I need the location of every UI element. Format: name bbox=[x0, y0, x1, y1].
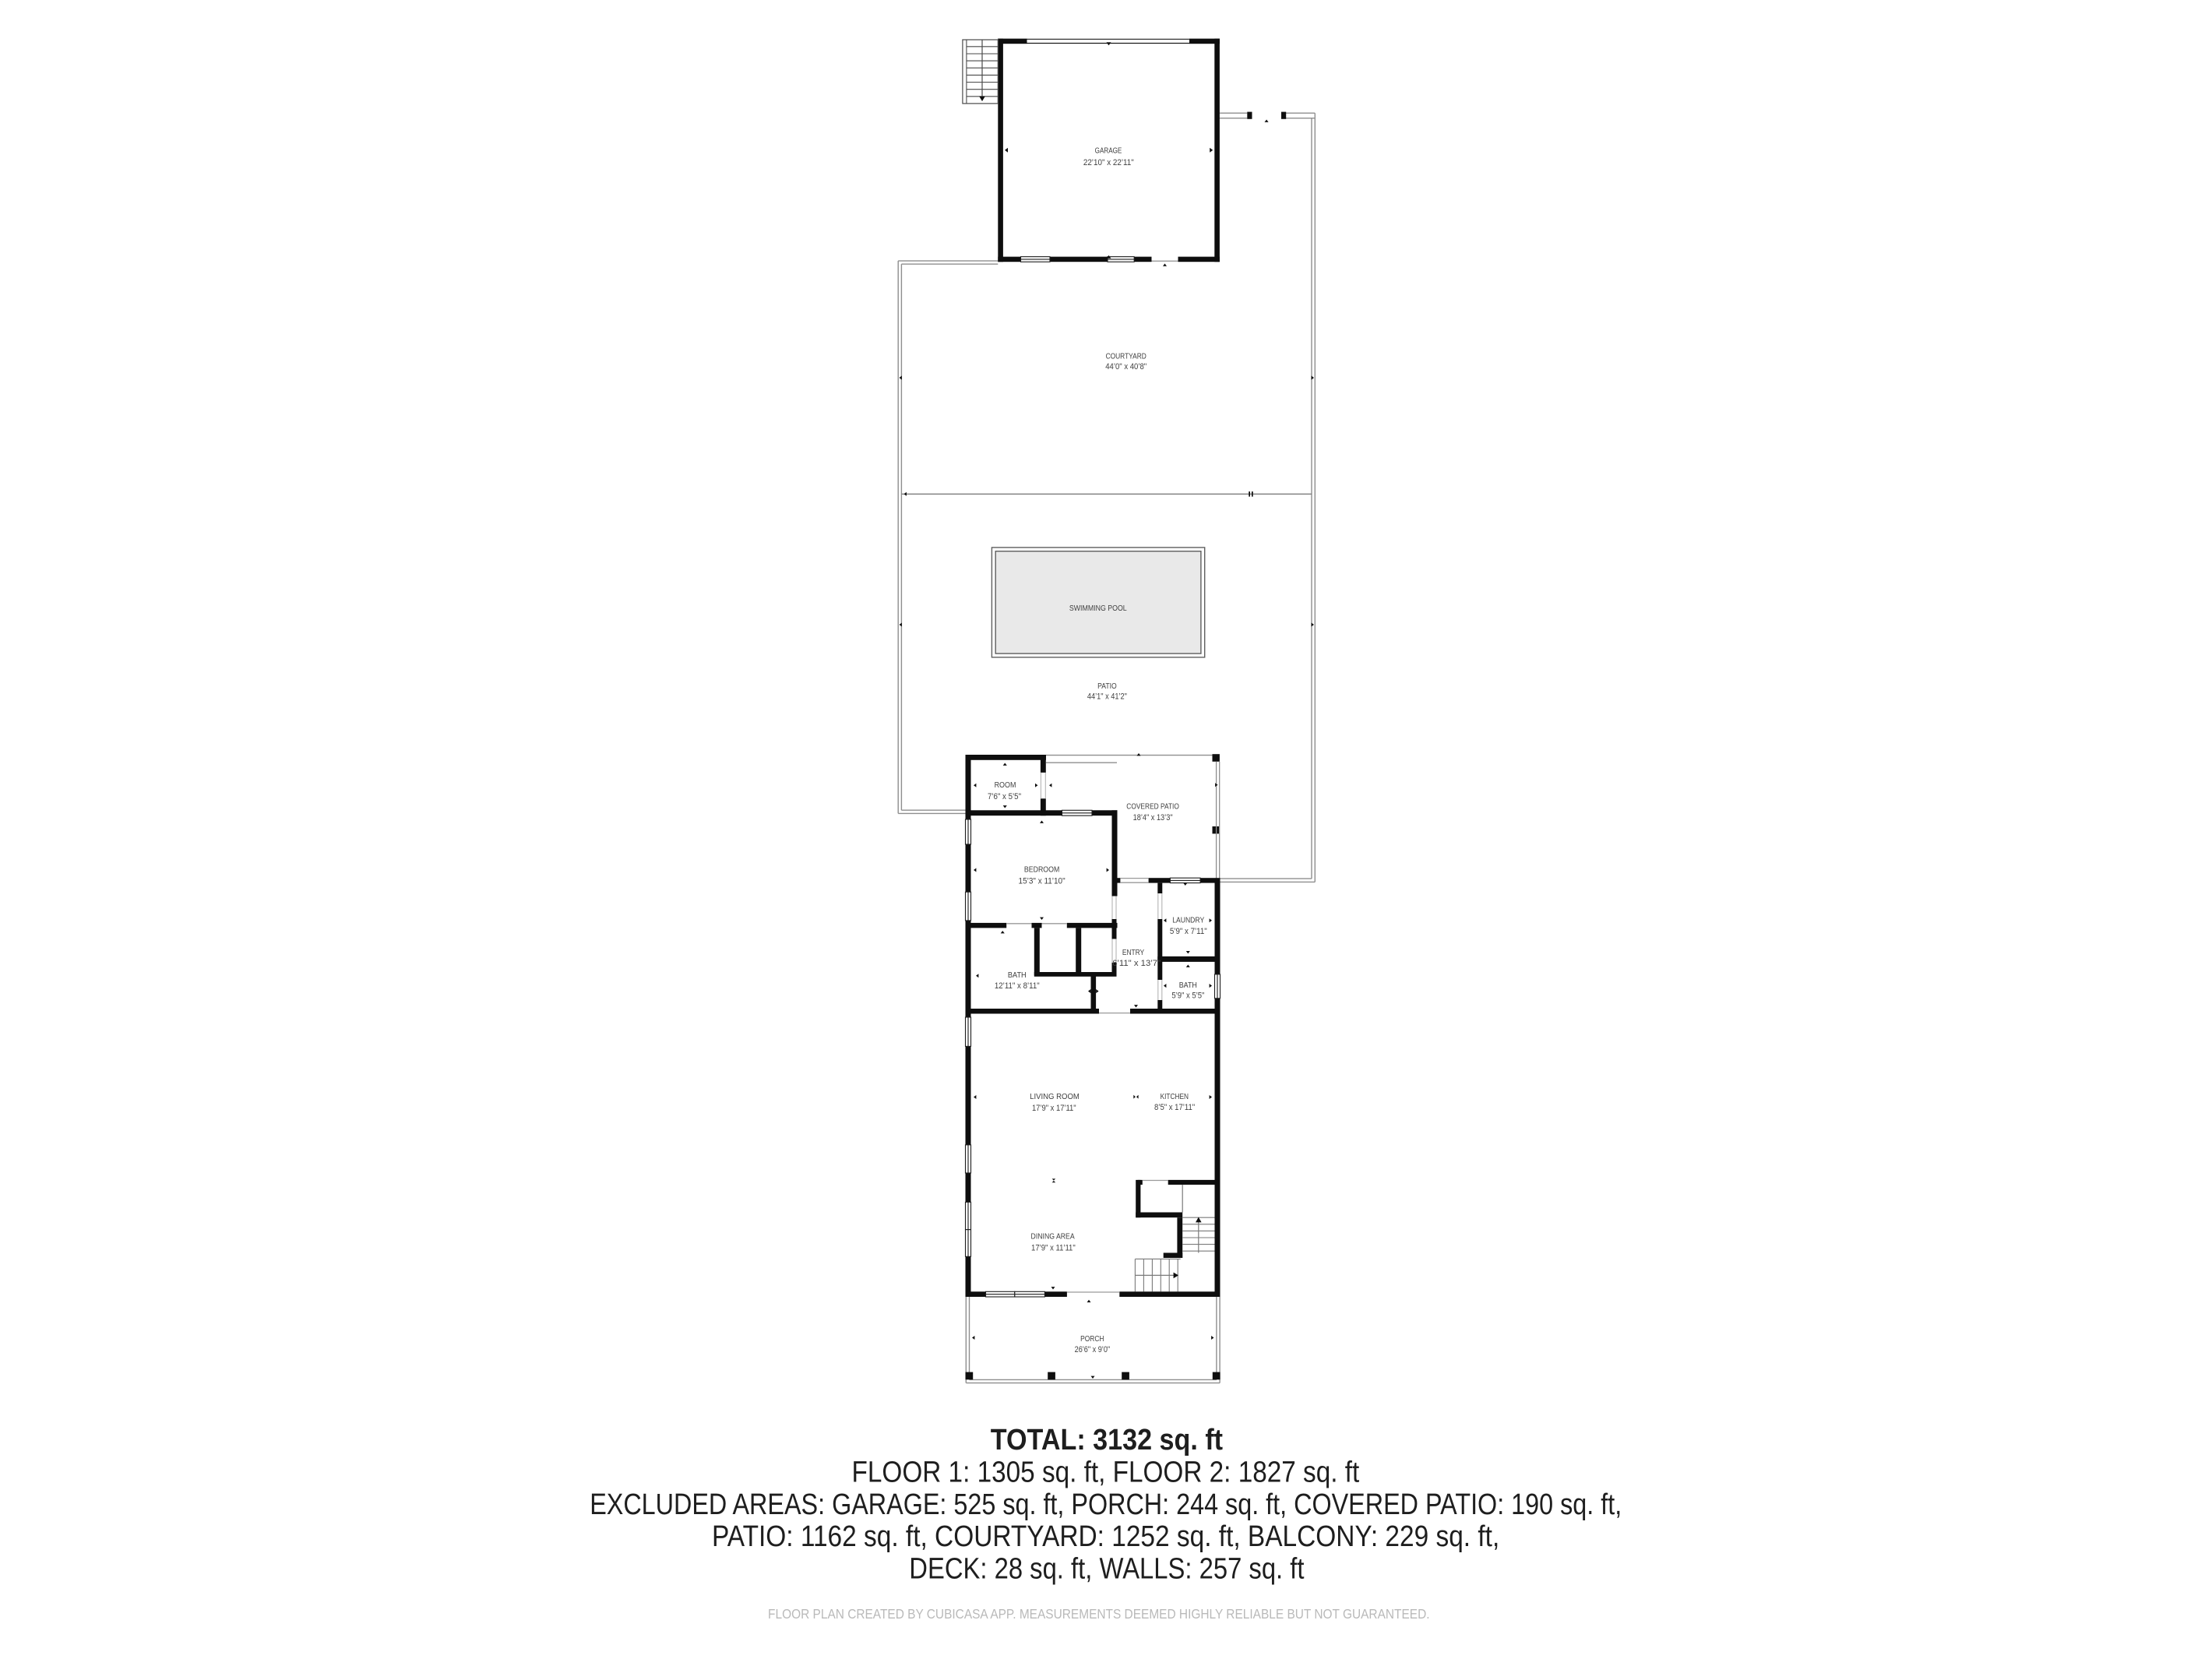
svg-text:LIVING ROOM: LIVING ROOM bbox=[1030, 1093, 1080, 1101]
svg-text:BATH: BATH bbox=[1008, 971, 1027, 980]
svg-text:5’9" x 5’5": 5’9" x 5’5" bbox=[1171, 992, 1204, 1001]
svg-text:EXCLUDED AREAS: GARAGE: 525 sq: EXCLUDED AREAS: GARAGE: 525 sq. ft, PORC… bbox=[590, 1488, 1622, 1521]
svg-text:KITCHEN: KITCHEN bbox=[1161, 1093, 1189, 1101]
svg-text:44’0" x 40’8": 44’0" x 40’8" bbox=[1105, 362, 1147, 372]
svg-text:44’1" x 41’2": 44’1" x 41’2" bbox=[1087, 692, 1127, 702]
svg-text:DINING AREA: DINING AREA bbox=[1031, 1232, 1076, 1241]
svg-text:PATIO: 1162 sq. ft, COURTYARD:: PATIO: 1162 sq. ft, COURTYARD: 1252 sq. … bbox=[712, 1520, 1499, 1553]
svg-text:18’4" x 13’3": 18’4" x 13’3" bbox=[1133, 813, 1173, 822]
svg-text:DECK: 28 sq. ft, WALLS: 257 sq: DECK: 28 sq. ft, WALLS: 257 sq. ft bbox=[909, 1552, 1305, 1585]
svg-text:FLOOR PLAN CREATED BY CUBICASA: FLOOR PLAN CREATED BY CUBICASA APP. MEAS… bbox=[768, 1606, 1430, 1622]
svg-text:SWIMMING POOL: SWIMMING POOL bbox=[1069, 604, 1127, 613]
svg-text:26’6" x 9’0": 26’6" x 9’0" bbox=[1075, 1345, 1111, 1354]
svg-text:6’11" x 13’7": 6’11" x 13’7" bbox=[1112, 959, 1161, 968]
svg-text:BEDROOM: BEDROOM bbox=[1024, 866, 1060, 875]
svg-text:PATIO: PATIO bbox=[1097, 682, 1117, 691]
svg-text:22’10" x 22’11": 22’10" x 22’11" bbox=[1083, 158, 1134, 167]
svg-text:17’9" x 17’11": 17’9" x 17’11" bbox=[1032, 1104, 1076, 1113]
svg-text:TOTAL: 3132 sq. ft: TOTAL: 3132 sq. ft bbox=[991, 1424, 1224, 1456]
svg-text:COURTYARD: COURTYARD bbox=[1106, 353, 1147, 361]
svg-text:12’11" x 8’11": 12’11" x 8’11" bbox=[995, 981, 1040, 991]
svg-text:FLOOR 1: 1305 sq. ft, FLOOR 2:: FLOOR 1: 1305 sq. ft, FLOOR 2: 1827 sq. … bbox=[852, 1456, 1360, 1489]
svg-text:17’9" x 11’11": 17’9" x 11’11" bbox=[1031, 1243, 1076, 1252]
svg-text:LAUNDRY: LAUNDRY bbox=[1172, 916, 1204, 925]
svg-text:8’5" x 17’11": 8’5" x 17’11" bbox=[1154, 1103, 1195, 1112]
svg-text:15’3" x 11’10": 15’3" x 11’10" bbox=[1019, 877, 1065, 886]
svg-text:5’9" x 7’11": 5’9" x 7’11" bbox=[1170, 927, 1207, 936]
svg-text:ENTRY: ENTRY bbox=[1122, 949, 1145, 957]
svg-text:COVERED PATIO: COVERED PATIO bbox=[1126, 803, 1179, 812]
svg-text:PORCH: PORCH bbox=[1080, 1335, 1104, 1344]
svg-text:7’6" x 5’5": 7’6" x 5’5" bbox=[988, 792, 1021, 801]
svg-text:GARAGE: GARAGE bbox=[1095, 147, 1122, 156]
svg-text:ROOM: ROOM bbox=[995, 781, 1016, 790]
svg-text:BATH: BATH bbox=[1179, 981, 1197, 990]
